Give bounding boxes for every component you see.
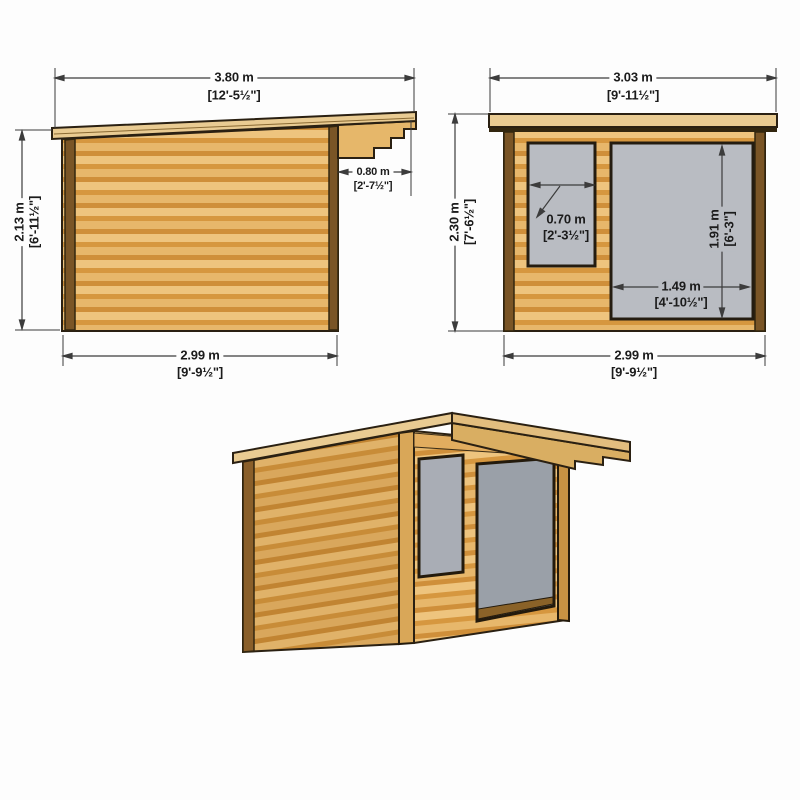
front-roof-plank	[489, 114, 777, 127]
dim-door-height-metric: 1.91 m	[706, 209, 721, 248]
dim-front-height-metric: 2.30 m	[446, 198, 461, 245]
dim-side-width-metric: 3.80 m	[210, 71, 257, 86]
cabin-left-wall	[243, 433, 399, 652]
dim-side-height-imperial: [6'-11½"]	[26, 196, 41, 248]
dim-front-base-imperial: [9'-9½"]	[611, 366, 657, 381]
dim-door-width-metric: 1.49 m	[658, 280, 703, 295]
side-elevation-view	[52, 112, 416, 331]
dim-side-width-imperial: [12'-5½"]	[208, 89, 261, 104]
cabin-right-post	[558, 445, 569, 621]
cabin-3d-door-opening	[477, 458, 554, 621]
side-right-corner-trim	[329, 126, 338, 330]
dim-door-height: 1.91 m [6'-3"]	[707, 206, 736, 251]
dim-side-overhang-metric: 0.80 m	[352, 166, 393, 178]
diagram-stage: 3.80 m [12'-5½"] 2.13 m [6'-11½"] 0.80 m…	[0, 0, 800, 800]
front-left-corner-trim	[504, 132, 514, 331]
dim-side-height: 2.13 m [6'-11½"]	[12, 196, 41, 248]
dim-side-base-imperial: [9'-9½"]	[177, 366, 223, 381]
front-right-corner-trim	[755, 132, 765, 331]
dim-side-base-metric: 2.99 m	[176, 349, 223, 364]
dim-side-height-metric: 2.13 m	[11, 198, 26, 245]
dim-side-overhang-imperial: [2'-7½"]	[354, 180, 393, 192]
dim-front-height: 2.30 m [7'-6½"]	[447, 198, 476, 245]
dim-door-width-imperial: [4'-10½"]	[652, 296, 711, 311]
dim-door-height-imperial: [6'-3"]	[721, 211, 736, 246]
dim-front-base-metric: 2.99 m	[610, 349, 657, 364]
dim-front-width-metric: 3.03 m	[609, 71, 656, 86]
dim-front-width-imperial: [9'-11½"]	[607, 89, 659, 104]
perspective-view	[233, 413, 630, 652]
dim-window-metric: 0.70 m	[543, 213, 588, 228]
cabin-corner-post	[399, 431, 414, 644]
cabin-left-edge-trim	[243, 460, 254, 652]
technical-drawing	[0, 0, 800, 800]
cabin-3d-window	[419, 455, 463, 577]
side-roof-fascia-steps	[338, 121, 416, 158]
dim-window-imperial: [2'-3½"]	[540, 229, 592, 244]
front-window	[528, 143, 595, 266]
side-left-corner-trim	[65, 139, 75, 330]
side-wall	[62, 126, 338, 331]
dim-front-height-imperial: [7'-6½"]	[461, 199, 476, 245]
